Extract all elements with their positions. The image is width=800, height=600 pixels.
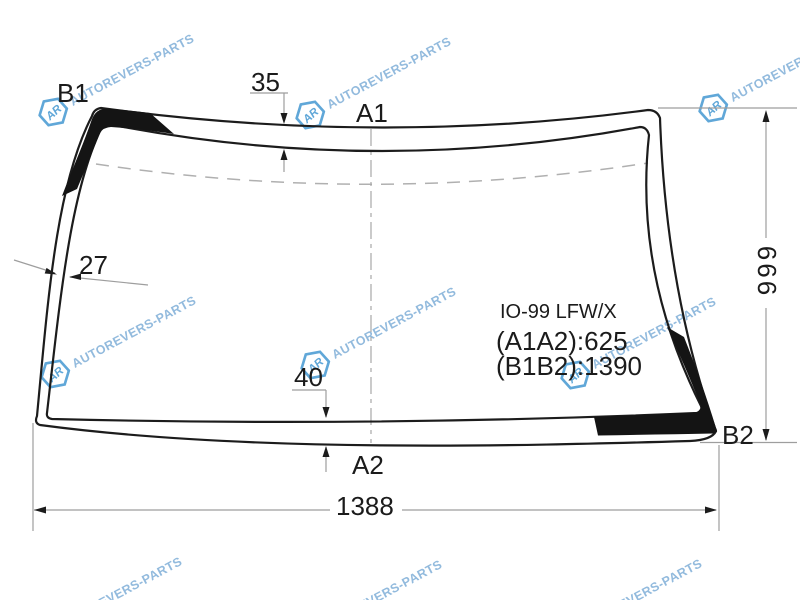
arrow-35-down — [281, 113, 288, 124]
dim-35-leader — [250, 93, 288, 172]
arrow-666-up — [763, 110, 770, 122]
spec-b1b2: (B1B2):1390 — [496, 353, 642, 379]
ceramic-band-top-left — [62, 109, 174, 197]
edge-label-a1: A1 — [356, 100, 388, 126]
arrow-666-down — [763, 429, 770, 441]
dim-bottom-band-value: 40 — [294, 364, 323, 390]
arrow-40-down — [323, 407, 330, 418]
glass-outlines — [36, 108, 716, 446]
ceramic-bands — [62, 109, 717, 436]
dimension-lines — [14, 93, 797, 531]
corner-label-b1: B1 — [57, 80, 89, 106]
dim-top-band-value: 35 — [251, 69, 280, 95]
edge-label-a2: A2 — [352, 452, 384, 478]
dim-left-band-value: 27 — [79, 252, 108, 278]
dim-height-value: 666 — [754, 246, 780, 298]
dim-40-leader — [292, 390, 326, 472]
arrow-1388-left — [34, 507, 46, 514]
windshield-outer-outline — [36, 108, 716, 446]
shade-band-dashed-line — [96, 163, 648, 184]
arrow-27-outer — [45, 268, 57, 275]
auxiliary-lines — [96, 129, 648, 443]
glass-part-code: IO-99 LFW/X — [500, 302, 617, 322]
dim-width-value: 1388 — [336, 493, 394, 519]
windshield-drawing — [0, 0, 800, 600]
windshield-diagram: AR AUTOREVERS-PARTS AR AUTOREVERS-PARTS … — [0, 0, 800, 600]
arrow-35-up — [281, 149, 288, 160]
arrow-1388-right — [705, 507, 717, 514]
arrow-40-up — [323, 446, 330, 457]
corner-label-b2: B2 — [722, 422, 754, 448]
